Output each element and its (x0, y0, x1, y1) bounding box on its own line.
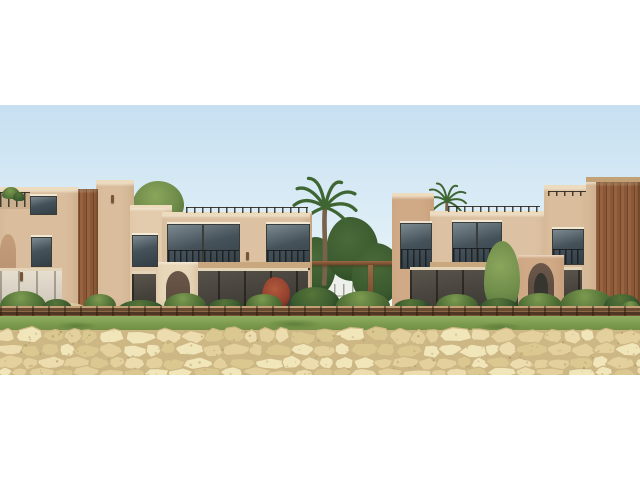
page-canvas (0, 0, 640, 480)
rooftop-terrace-plants (13, 192, 25, 201)
stone-retaining-wall (0, 323, 640, 375)
rooftop-railing (448, 206, 540, 212)
balcony-window (400, 223, 432, 269)
rooftop-railing (548, 191, 588, 196)
wall-lamp (246, 252, 249, 260)
upper-window (132, 235, 158, 267)
upper-window (31, 237, 52, 267)
rooftop-railing (186, 207, 308, 213)
left-villa-tall-mass (96, 180, 134, 313)
listing-photo (0, 105, 640, 375)
wall-lamp (111, 195, 114, 203)
timber-entry-panel (76, 189, 98, 310)
wall-lamp (20, 272, 23, 281)
upper-window (30, 196, 57, 215)
tower-wood-slats (596, 182, 640, 310)
